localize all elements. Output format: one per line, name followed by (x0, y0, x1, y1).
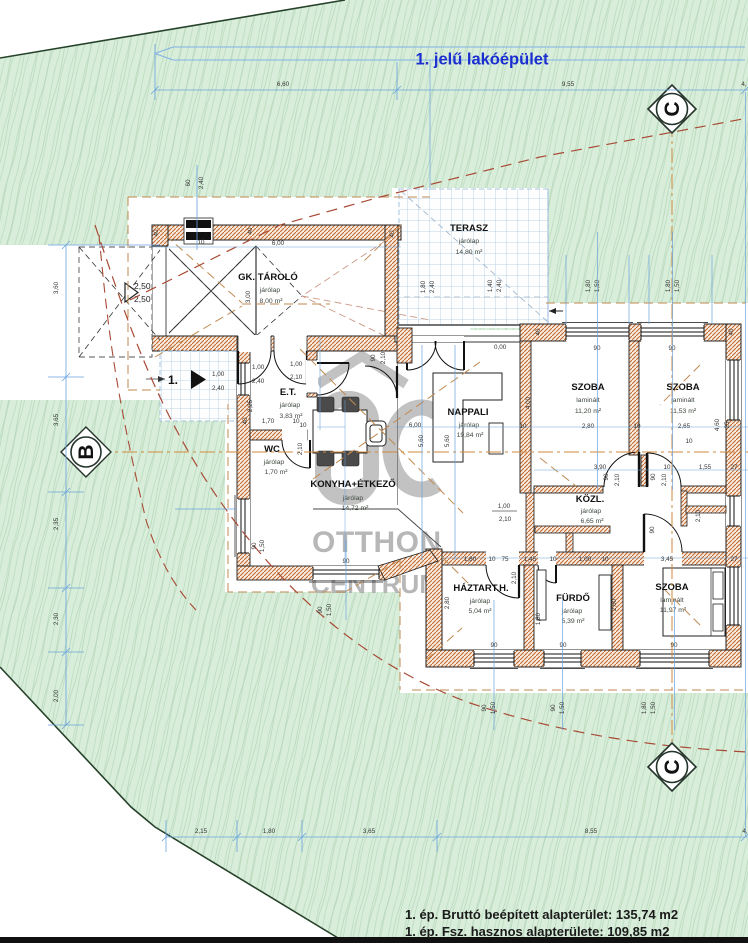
svg-text:10: 10 (488, 556, 496, 563)
svg-text:2,30: 2,30 (53, 612, 60, 625)
svg-text:10: 10 (601, 556, 609, 563)
svg-text:E.T.: E.T. (280, 387, 296, 398)
svg-text:5,60: 5,60 (444, 434, 451, 447)
svg-text:19,84 m²: 19,84 m² (457, 432, 485, 439)
svg-text:járólap: járólap (458, 422, 480, 429)
svg-text:14,80 m²: 14,80 m² (456, 249, 484, 256)
svg-text:5,60: 5,60 (418, 434, 425, 447)
svg-text:90: 90 (370, 354, 377, 362)
svg-text:40: 40 (247, 227, 254, 235)
svg-text:1. ép. Fsz. hasznos alapterüle: 1. ép. Fsz. hasznos alapterülete: 109,85… (405, 924, 669, 939)
svg-text:10: 10 (633, 423, 641, 430)
svg-text:1,80: 1,80 (585, 279, 592, 292)
svg-text:40: 40 (389, 230, 396, 238)
svg-text:3,45: 3,45 (661, 556, 674, 563)
svg-text:40: 40 (535, 328, 542, 336)
svg-text:5,04 m²: 5,04 m² (468, 608, 492, 615)
svg-text:GK. TÁROLÓ: GK. TÁROLÓ (238, 271, 298, 283)
svg-text:1,00: 1,00 (252, 364, 265, 371)
svg-text:4,00: 4,00 (525, 396, 532, 409)
svg-text:10: 10 (292, 418, 300, 425)
svg-text:1,00: 1,00 (579, 556, 592, 563)
svg-text:3,00: 3,00 (245, 290, 252, 303)
svg-text:75: 75 (501, 556, 509, 563)
svg-text:2,60: 2,60 (611, 598, 618, 611)
svg-text:2,40: 2,40 (198, 176, 205, 189)
svg-text:járólap: járólap (279, 402, 301, 409)
svg-text:KÖZL.: KÖZL. (576, 494, 605, 505)
svg-text:1,80: 1,80 (665, 279, 672, 292)
svg-text:SZOBA: SZOBA (571, 382, 604, 393)
svg-text:9,55: 9,55 (562, 81, 575, 88)
svg-text:1,55: 1,55 (699, 464, 712, 471)
svg-text:1,50: 1,50 (490, 701, 497, 714)
svg-text:2,35: 2,35 (53, 517, 60, 530)
svg-text:járólap: járólap (259, 287, 281, 294)
svg-text:1,50: 1,50 (674, 279, 681, 292)
svg-text:1,50: 1,50 (326, 603, 333, 616)
svg-text:10: 10 (519, 423, 527, 430)
svg-text:90: 90 (649, 526, 656, 534)
svg-text:B: B (75, 444, 98, 459)
svg-text:2,10: 2,10 (511, 571, 518, 584)
svg-text:90: 90 (481, 704, 488, 712)
svg-text:2,10: 2,10 (290, 374, 303, 381)
svg-text:0,00: 0,00 (494, 344, 507, 351)
svg-text:10: 10 (299, 422, 307, 429)
svg-text:3,65: 3,65 (53, 413, 60, 426)
svg-text:HÁZTART.H.: HÁZTART.H. (453, 583, 508, 594)
svg-text:6,60: 6,60 (277, 81, 290, 88)
svg-text:1,80: 1,80 (464, 556, 477, 563)
svg-text:3,65: 3,65 (363, 828, 376, 835)
svg-text:40: 40 (153, 229, 160, 237)
svg-text:járólap: járólap (580, 508, 602, 515)
svg-text:4,: 4, (742, 828, 748, 835)
svg-text:1,45: 1,45 (524, 556, 537, 563)
svg-text:KONYHA+ÉTKEZŐ: KONYHA+ÉTKEZŐ (310, 478, 395, 490)
svg-text:1,80: 1,80 (641, 701, 648, 714)
svg-text:1,00: 1,00 (498, 503, 511, 510)
svg-text:1.: 1. (168, 373, 178, 387)
svg-text:1,40: 1,40 (487, 279, 494, 292)
svg-text:40: 40 (242, 417, 249, 425)
svg-text:2,10: 2,10 (661, 473, 668, 486)
svg-text:2,10: 2,10 (499, 516, 512, 523)
svg-text:25: 25 (724, 421, 731, 429)
svg-text:40: 40 (728, 328, 735, 336)
svg-text:2,10: 2,10 (297, 442, 304, 455)
svg-text:1,80: 1,80 (420, 280, 427, 293)
svg-text:90: 90 (559, 642, 567, 649)
svg-text:11,53 m²: 11,53 m² (670, 408, 697, 415)
svg-text:10: 10 (663, 464, 671, 471)
svg-text:2,10: 2,10 (614, 473, 621, 486)
svg-text:TERASZ: TERASZ (450, 223, 488, 234)
svg-text:90: 90 (251, 542, 258, 550)
svg-text:4,60: 4,60 (714, 418, 721, 431)
svg-text:1,80: 1,80 (535, 612, 542, 625)
svg-text:11,97 m²: 11,97 m² (660, 607, 687, 614)
svg-text:3,83 m²: 3,83 m² (279, 413, 303, 420)
svg-text:90: 90 (550, 704, 557, 712)
svg-text:2,50: 2,50 (134, 281, 151, 291)
svg-text:1,70: 1,70 (262, 418, 275, 425)
svg-text:2,25: 2,25 (247, 399, 254, 412)
svg-text:10: 10 (549, 556, 557, 563)
svg-text:2,80: 2,80 (582, 423, 595, 430)
svg-text:14,72 m²: 14,72 m² (342, 505, 370, 512)
svg-text:2,00: 2,00 (53, 689, 60, 702)
svg-text:2,50: 2,50 (134, 294, 151, 304)
svg-text:1,50: 1,50 (259, 539, 266, 552)
svg-text:2,80: 2,80 (444, 596, 451, 609)
svg-text:1. jelű lakóépület: 1. jelű lakóépület (416, 51, 549, 69)
svg-text:2,65: 2,65 (678, 423, 691, 430)
svg-text:90: 90 (603, 473, 610, 481)
svg-text:1,70 m²: 1,70 m² (264, 469, 288, 476)
svg-text:1,80: 1,80 (263, 828, 276, 835)
svg-text:1,50: 1,50 (650, 701, 657, 714)
svg-text:6,00: 6,00 (409, 422, 422, 429)
svg-text:NAPPALI: NAPPALI (448, 407, 489, 418)
svg-text:90: 90 (650, 473, 657, 481)
svg-text:2,15: 2,15 (195, 828, 208, 835)
svg-text:1. ép. Bruttó beépített alapte: 1. ép. Bruttó beépített alapterület: 135… (405, 907, 678, 922)
svg-text:2,40: 2,40 (496, 279, 503, 292)
svg-text:2,10: 2,10 (695, 509, 702, 522)
svg-text:WC: WC (264, 444, 280, 455)
svg-text:1,00: 1,00 (212, 371, 225, 378)
svg-text:laminált: laminált (576, 397, 600, 404)
svg-text:járólap: járólap (263, 459, 285, 466)
svg-text:járólap: járólap (469, 598, 491, 605)
svg-text:27: 27 (730, 556, 738, 563)
svg-text:6,00: 6,00 (272, 240, 285, 247)
svg-text:járólap: járólap (561, 608, 583, 615)
svg-text:3,60: 3,60 (53, 281, 60, 294)
svg-text:2,40: 2,40 (212, 385, 225, 392)
svg-text:4,: 4, (741, 81, 747, 88)
svg-text:27: 27 (730, 464, 738, 471)
svg-text:5,39 m²: 5,39 m² (561, 618, 585, 625)
svg-text:1,00: 1,00 (290, 361, 303, 368)
svg-text:10: 10 (197, 239, 205, 246)
svg-text:60: 60 (185, 179, 192, 187)
svg-text:3,90: 3,90 (594, 464, 607, 471)
svg-text:laminált: laminált (671, 397, 695, 404)
svg-text:8,55: 8,55 (585, 828, 598, 835)
svg-text:FÜRDŐ: FÜRDŐ (556, 592, 590, 604)
svg-text:C: C (661, 101, 684, 116)
svg-text:2,40: 2,40 (252, 378, 265, 385)
svg-text:C: C (661, 759, 684, 774)
svg-text:2,40: 2,40 (429, 280, 436, 293)
svg-text:2,10: 2,10 (380, 351, 387, 364)
svg-text:járólap: járólap (458, 238, 480, 245)
svg-text:6,65 m²: 6,65 m² (580, 518, 604, 525)
svg-text:1,50: 1,50 (559, 701, 566, 714)
svg-text:SZOBA: SZOBA (666, 382, 699, 393)
svg-text:90: 90 (317, 606, 324, 614)
svg-text:10: 10 (685, 438, 693, 445)
